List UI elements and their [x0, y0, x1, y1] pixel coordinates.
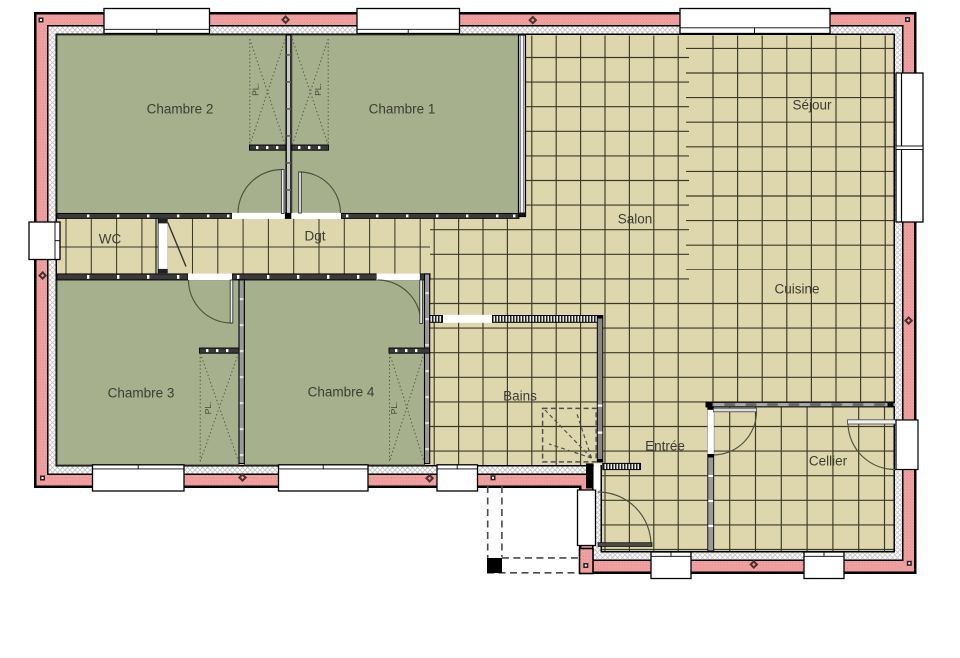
svg-text:Bains: Bains	[503, 389, 537, 404]
svg-text:Cuisine: Cuisine	[774, 282, 819, 297]
svg-text:Séjour: Séjour	[792, 98, 832, 113]
svg-text:PL.: PL.	[203, 402, 213, 415]
svg-text:PL.: PL.	[389, 402, 399, 415]
svg-text:Salon: Salon	[618, 212, 653, 227]
svg-text:PL.: PL.	[313, 83, 323, 96]
svg-text:Chambre 3: Chambre 3	[108, 386, 175, 401]
svg-text:WC: WC	[99, 232, 122, 247]
svg-text:Cellier: Cellier	[809, 454, 848, 469]
svg-text:Dgt: Dgt	[304, 229, 325, 244]
svg-text:PL.: PL.	[250, 83, 260, 96]
svg-text:Chambre 4: Chambre 4	[308, 385, 375, 400]
svg-text:Chambre 1: Chambre 1	[369, 102, 436, 117]
svg-text:Chambre 2: Chambre 2	[147, 102, 214, 117]
svg-text:Entrée: Entrée	[645, 439, 685, 454]
